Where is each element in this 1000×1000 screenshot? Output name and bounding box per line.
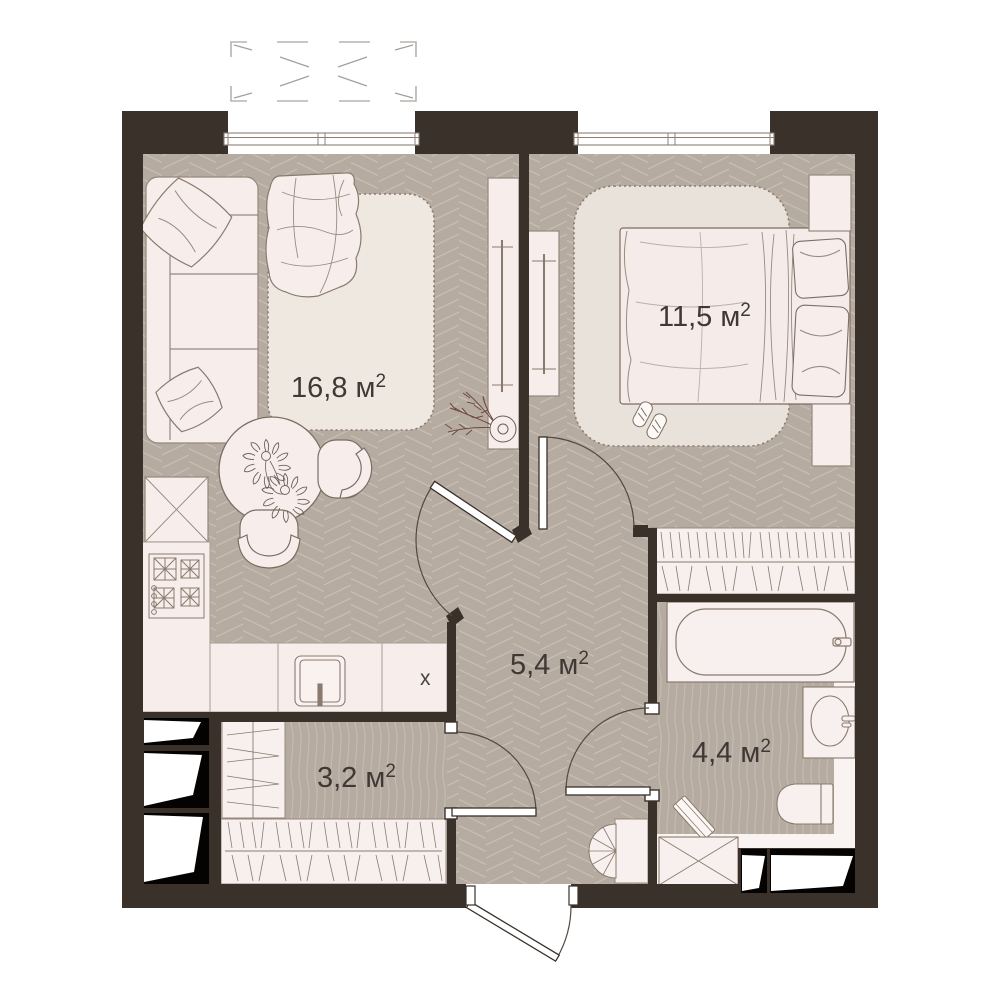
svg-text:11,5 м2: 11,5 м2 <box>658 300 751 333</box>
svg-text:5,4 м2: 5,4 м2 <box>510 648 589 681</box>
svg-text:3,2 м2: 3,2 м2 <box>317 761 396 794</box>
svg-text:х: х <box>420 667 431 690</box>
svg-text:4,4 м2: 4,4 м2 <box>692 736 771 769</box>
svg-text:16,8 м2: 16,8 м2 <box>291 371 386 404</box>
